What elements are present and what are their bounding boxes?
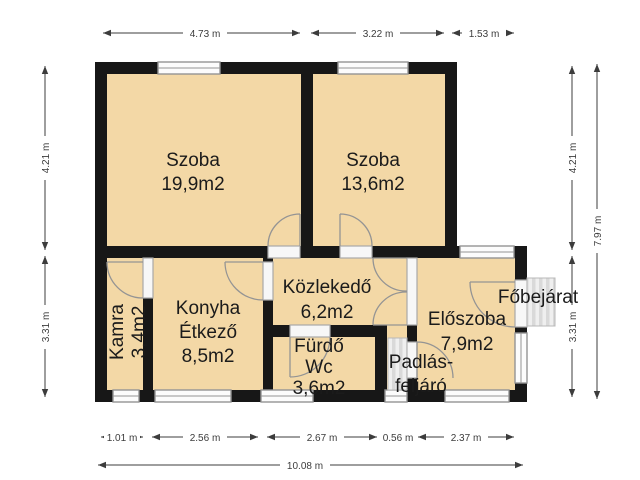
dim-value: 4.21 m (568, 143, 579, 174)
dim-bottom-2: 2.56 m (152, 430, 258, 444)
room-name: Szoba (346, 150, 400, 171)
dim-left-1: 4.21 m (38, 66, 52, 250)
dim-value: 2.37 m (451, 433, 482, 444)
room-label-fobejarat: Főbejárat (498, 287, 579, 308)
dim-value: 3.31 m (41, 312, 52, 343)
opening-szoba2 (340, 246, 372, 258)
dim-top-2: 3.22 m (311, 26, 444, 40)
dim-value: 4.21 m (41, 143, 52, 174)
dim-value: 3.22 m (363, 29, 394, 40)
dim-value: 4.73 m (190, 29, 221, 40)
room-name: feljáró (395, 376, 447, 397)
room-name: Közlekedő (283, 277, 372, 298)
dim-right-1: 4.21 m (565, 66, 579, 250)
room-area: 13,6m2 (341, 174, 404, 195)
room-area: 19,9m2 (161, 174, 224, 195)
dim-top-1: 4.73 m (103, 26, 300, 40)
room-name: Fürdő (294, 336, 344, 357)
room-area: 3,4m2 (129, 306, 150, 359)
room-name: Konyha (176, 298, 241, 319)
dim-value: 1.53 m (469, 29, 500, 40)
window-eloszoba-bottom (445, 390, 509, 402)
dim-bottom-3: 2.67 m (267, 430, 377, 444)
room-name: Kamra (107, 304, 128, 360)
dim-top-3: 1.53 m (452, 26, 514, 40)
dim-bottom-total: 10.08 m (98, 458, 523, 472)
dim-value: 3.31 m (568, 312, 579, 343)
room-area: 8,5m2 (182, 346, 235, 367)
dim-value: 0.56 m (383, 433, 414, 444)
room-label-kamra: Kamra 3,4m2 (107, 304, 150, 360)
opening-konyha (263, 262, 273, 300)
opening-kamra (143, 258, 153, 298)
dim-bottom-1: 1.01 m (101, 430, 143, 444)
window-kamra-bottom (113, 390, 139, 402)
dim-right-2: 3.31 m (565, 256, 579, 397)
room-name: Előszoba (428, 309, 507, 330)
window-szoba1-top (158, 62, 220, 74)
opening-eloszoba-double (407, 258, 417, 325)
wall-left-outer (95, 62, 107, 402)
window-eloszoba-right (515, 333, 527, 383)
room-name: Padlás- (389, 352, 453, 373)
dim-value: 10.08 m (287, 461, 323, 472)
window-konyha-bottom (155, 390, 231, 402)
dim-right-total: 7.97 m (590, 64, 604, 399)
room-name: Étkező (179, 322, 237, 343)
opening-szoba1 (268, 246, 300, 258)
window-szoba2-top (338, 62, 408, 74)
dim-bottom-4: 0.56 m (380, 430, 416, 444)
window-eloszoba-top (460, 246, 514, 258)
dim-left-2: 3.31 m (38, 256, 52, 397)
room-area: 6,2m2 (301, 302, 354, 323)
wall-szoba-divider (301, 62, 313, 252)
room-label-konyha-etkezo: Konyha Étkező 8,5m2 (176, 298, 241, 367)
room-name: Szoba (166, 150, 220, 171)
dim-bottom-5: 2.37 m (418, 430, 514, 444)
wall-right-upper-outer (445, 62, 457, 258)
dim-value: 7.97 m (593, 216, 604, 247)
dim-value: 2.67 m (307, 433, 338, 444)
room-name: Wc (305, 357, 332, 378)
entrance-label: Főbejárat (498, 287, 579, 308)
dim-value: 2.56 m (190, 433, 221, 444)
floor-plan: Szoba 19,9m2 Szoba 13,6m2 Közlekedő 6,2m… (0, 0, 640, 480)
room-area: 3,6m2 (293, 378, 346, 399)
dim-value: 1.01 m (107, 433, 138, 444)
